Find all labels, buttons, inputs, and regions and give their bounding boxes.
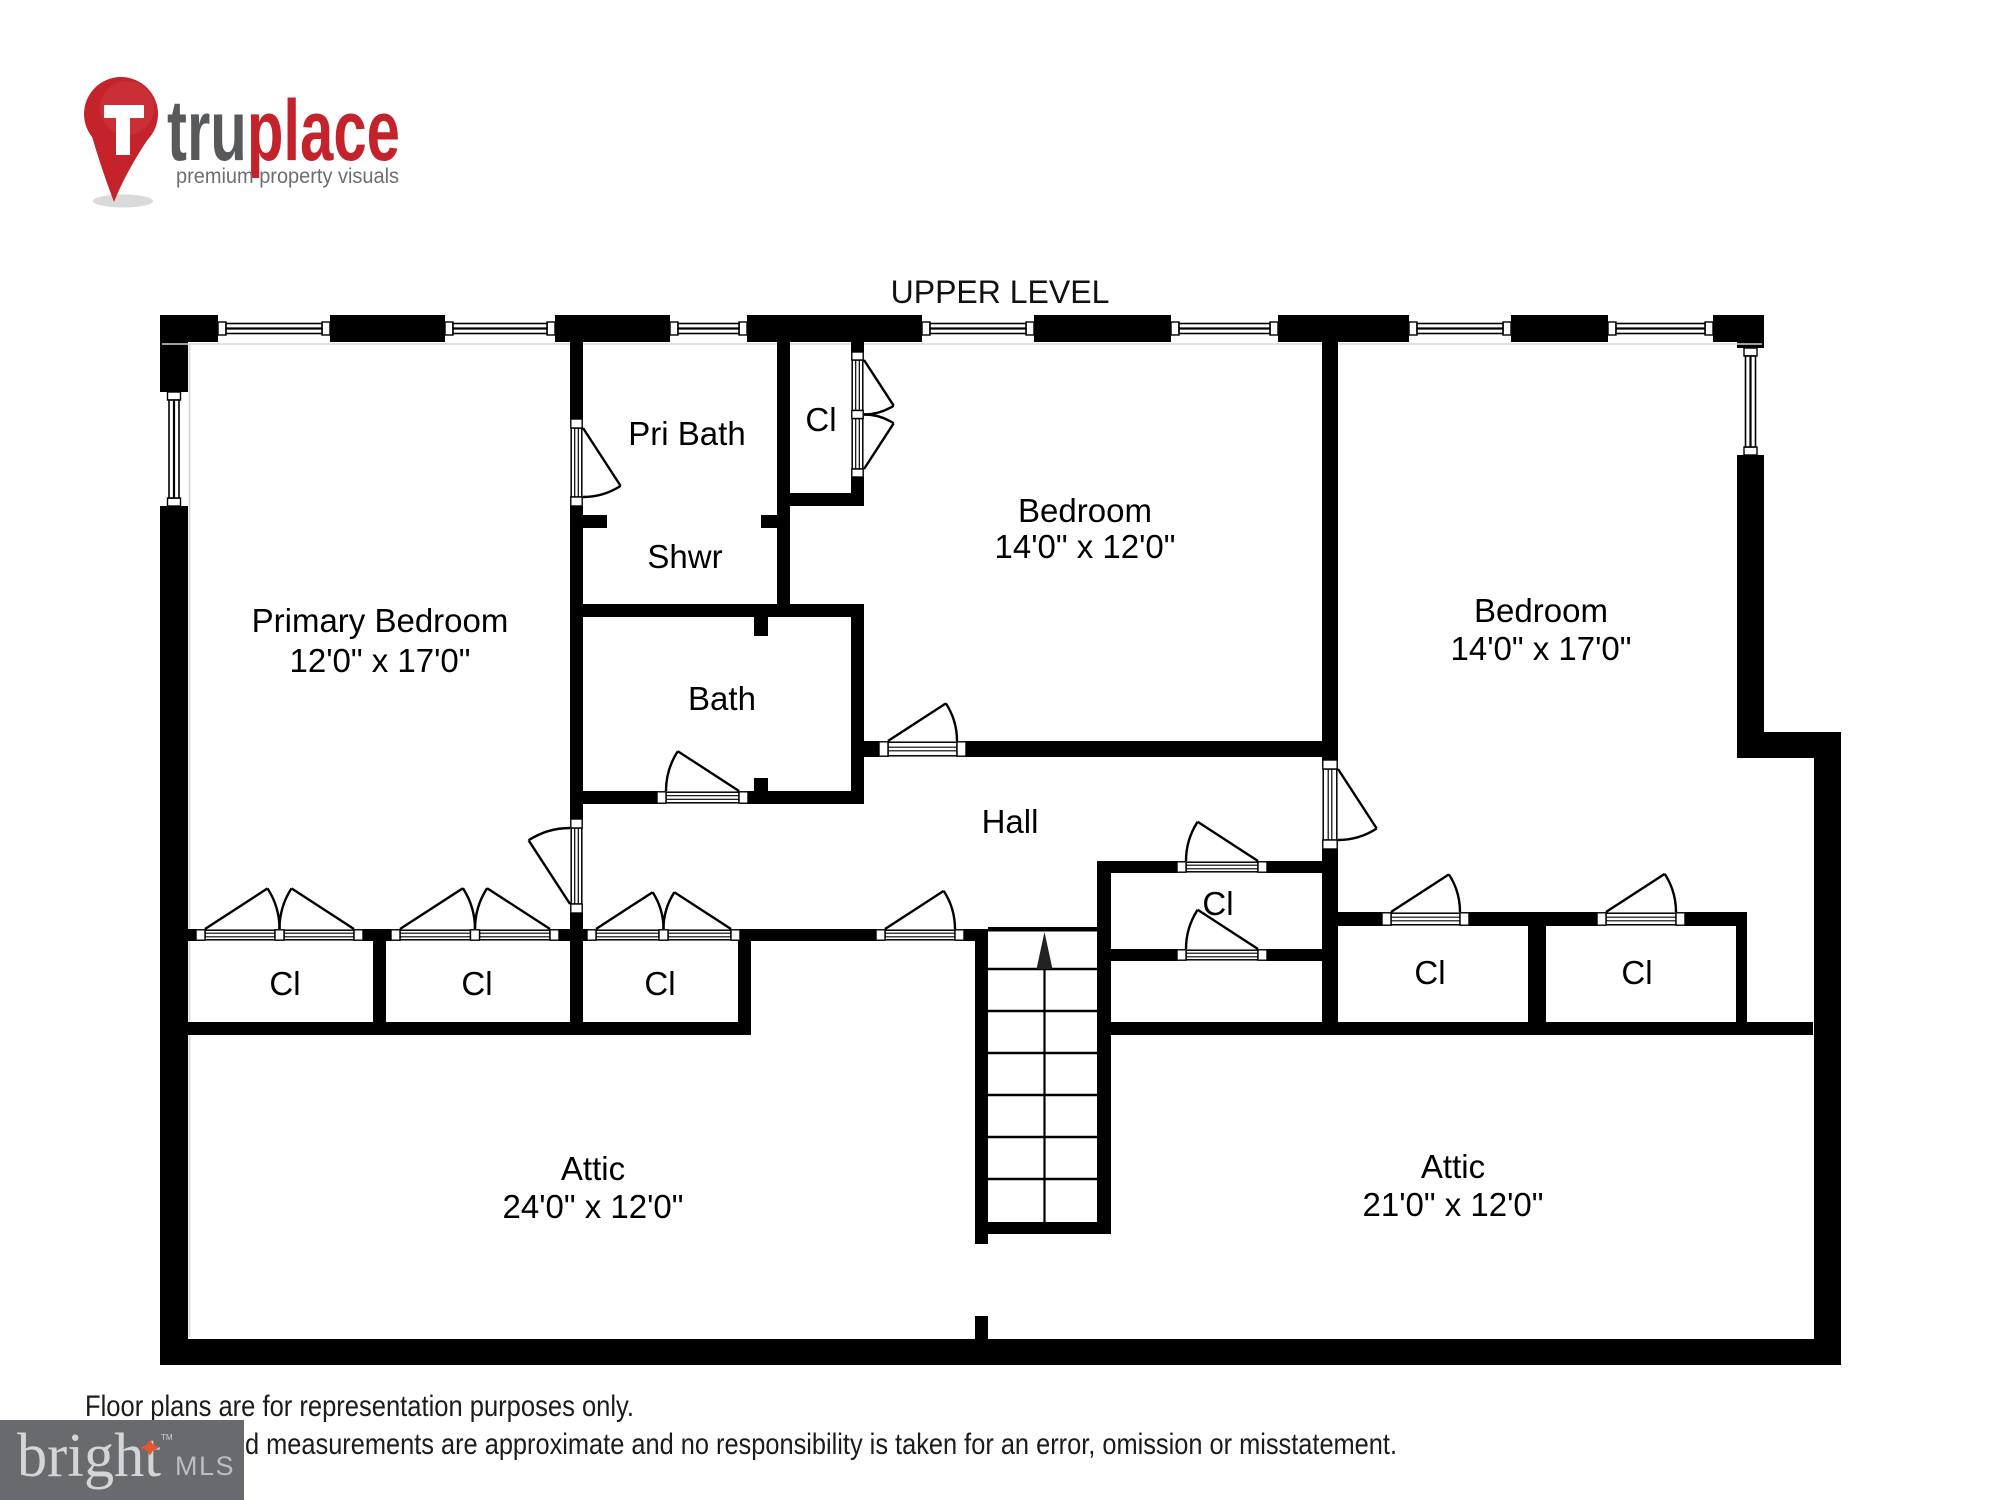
svg-text:12'0" x 17'0": 12'0" x 17'0": [290, 642, 471, 679]
svg-text:Cl: Cl: [1414, 954, 1445, 991]
svg-text:bright: bright: [17, 1422, 161, 1490]
svg-text:Cl: Cl: [644, 965, 675, 1002]
svg-text:14'0" x 17'0": 14'0" x 17'0": [1451, 630, 1632, 667]
svg-text:Cl: Cl: [269, 965, 300, 1002]
svg-text:Floor plans are for representa: Floor plans are for representation purpo…: [85, 1390, 634, 1423]
svg-text:24'0" x 12'0": 24'0" x 12'0": [503, 1188, 684, 1225]
svg-text:21'0" x 12'0": 21'0" x 12'0": [1363, 1186, 1544, 1223]
svg-text:premium property visuals: premium property visuals: [176, 165, 399, 188]
svg-text:Shwr: Shwr: [647, 538, 722, 575]
svg-text:Bath: Bath: [688, 680, 756, 717]
svg-text:Primary Bedroom: Primary Bedroom: [252, 602, 509, 639]
svg-text:Pri Bath: Pri Bath: [628, 415, 745, 452]
svg-text:d measurements are approximate: d measurements are approximate and no re…: [245, 1428, 1397, 1461]
svg-text:Cl: Cl: [461, 965, 492, 1002]
svg-text:TM: TM: [161, 1433, 173, 1442]
svg-text:Cl: Cl: [1621, 954, 1652, 991]
svg-text:Hall: Hall: [982, 803, 1039, 840]
svg-text:Cl: Cl: [805, 401, 836, 438]
svg-text:14'0" x 12'0": 14'0" x 12'0": [995, 528, 1176, 565]
svg-text:Attic: Attic: [561, 1150, 625, 1187]
svg-text:UPPER LEVEL: UPPER LEVEL: [891, 274, 1110, 310]
svg-text:Cl: Cl: [1202, 885, 1233, 922]
svg-text:Bedroom: Bedroom: [1474, 592, 1608, 629]
svg-text:Bedroom: Bedroom: [1018, 492, 1152, 529]
svg-text:Attic: Attic: [1421, 1148, 1485, 1185]
svg-text:MLS: MLS: [175, 1451, 235, 1481]
